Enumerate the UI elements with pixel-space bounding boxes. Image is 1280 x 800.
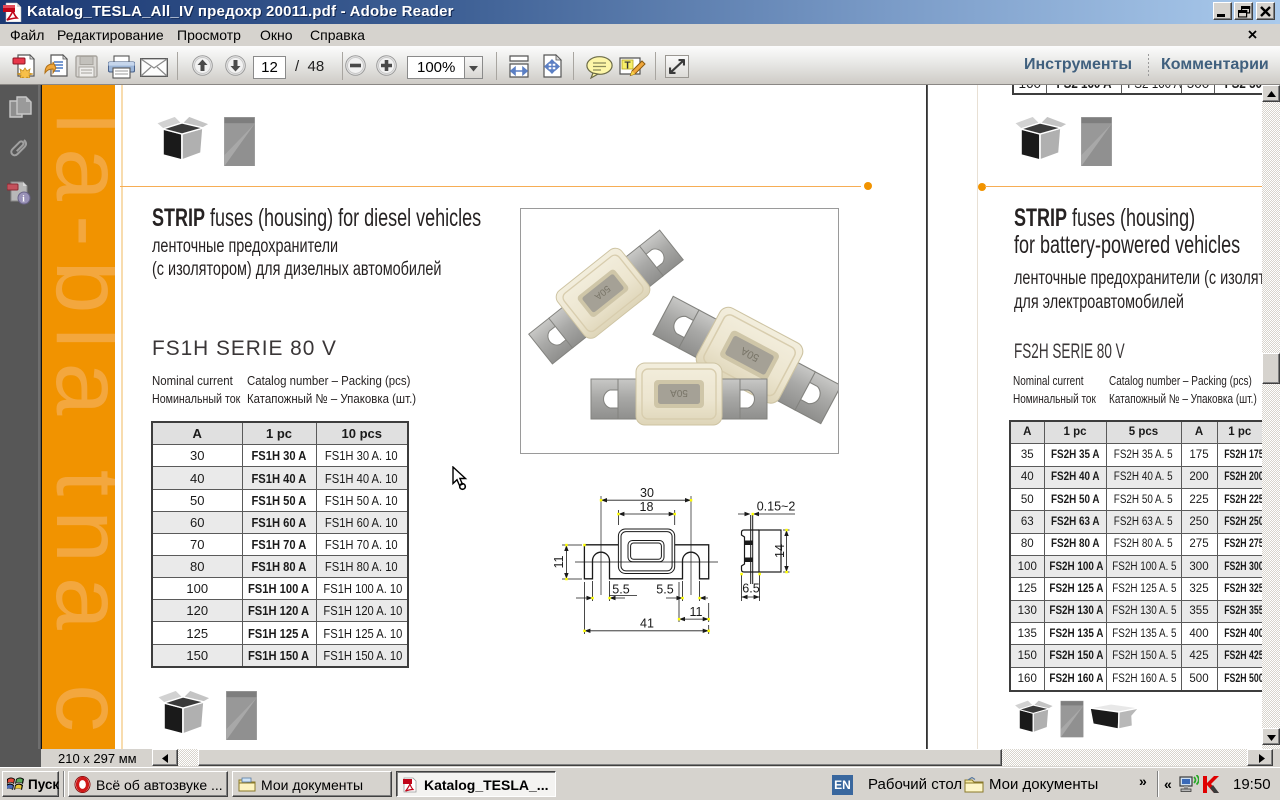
svg-text:T: T — [625, 61, 631, 72]
svg-text:5.5: 5.5 — [656, 583, 673, 597]
svg-text:30: 30 — [640, 486, 654, 500]
svg-text:41: 41 — [640, 617, 654, 631]
svg-text:14: 14 — [773, 544, 787, 558]
svg-text:11: 11 — [690, 605, 703, 619]
svg-text:18: 18 — [640, 500, 654, 514]
svg-text:0.15~2: 0.15~2 — [757, 500, 796, 514]
svg-text:6.5: 6.5 — [742, 582, 759, 596]
svg-text:11: 11 — [552, 555, 566, 568]
svg-text:5.5: 5.5 — [612, 583, 629, 597]
